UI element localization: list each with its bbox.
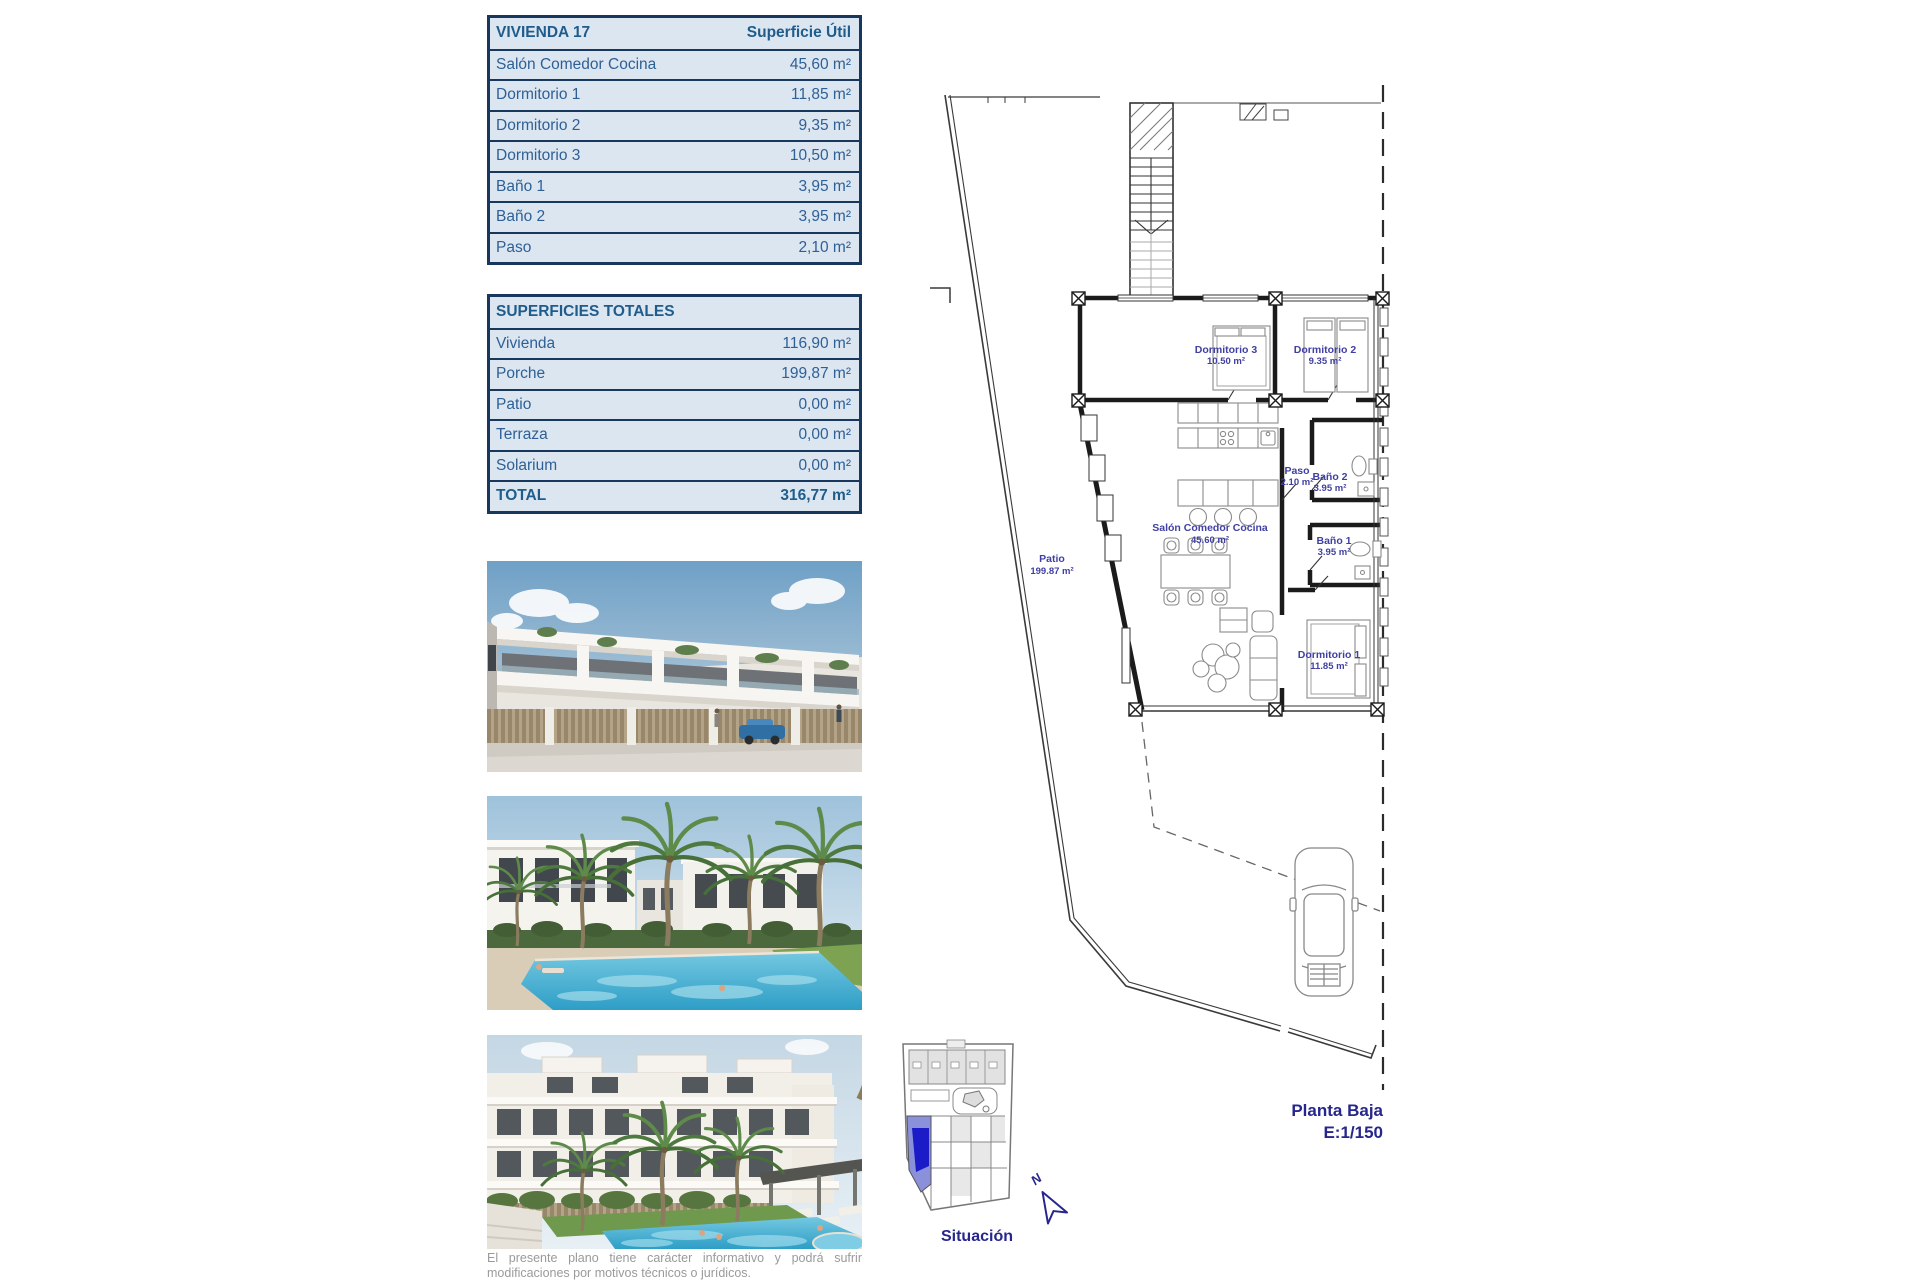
room-area-paso: 2.10 m²: [1281, 477, 1314, 488]
plan-caption-scale: E:1/150: [1323, 1123, 1383, 1140]
row-label: Baño 2: [496, 208, 545, 226]
row-label: Solarium: [496, 457, 557, 475]
render-photo-pool: [487, 796, 862, 1010]
roof-elements: [1240, 104, 1288, 120]
floor-plan: Dormitorio 3 10.50 m² Dormitorio 2 9.35 …: [930, 70, 1400, 1140]
row-label: Paso: [496, 239, 531, 257]
floor-plan-area: Dormitorio 3 10.50 m² Dormitorio 2 9.35 …: [930, 70, 1400, 1140]
totales-table: SUPERFICIES TOTALES Vivienda116,90 m² Po…: [487, 294, 862, 514]
render-photo-street: [487, 561, 862, 772]
total-value: 316,77 m²: [780, 487, 851, 505]
room-area-bano1: 3.95 m²: [1318, 547, 1351, 558]
render-photo-building-art: [487, 1035, 862, 1249]
table-row: Baño 13,95 m²: [490, 171, 859, 202]
table-row: Dormitorio 29,35 m²: [490, 110, 859, 141]
table-row: Dormitorio 111,85 m²: [490, 79, 859, 110]
row-value: 10,50 m²: [790, 147, 851, 165]
row-label: Salón Comedor Cocina: [496, 56, 656, 74]
row-value: 9,35 m²: [798, 117, 851, 135]
room-label-paso: Paso: [1284, 465, 1309, 477]
highlighted-parcel: [907, 1116, 931, 1192]
row-value: 3,95 m²: [798, 178, 851, 196]
row-value: 45,60 m²: [790, 56, 851, 74]
site-road: [911, 1090, 949, 1101]
room-label-bano1: Baño 1: [1316, 535, 1351, 547]
render-photo-street-art: [487, 561, 862, 772]
furniture: [1161, 318, 1381, 700]
north-arrow-icon: N: [1028, 1170, 1067, 1224]
table-row: Vivienda116,90 m²: [490, 328, 859, 359]
situacion-map: Situación N: [885, 1038, 1085, 1250]
table-row: Dormitorio 310,50 m²: [490, 140, 859, 171]
render-photo-building: [487, 1035, 862, 1249]
room-label-dormitorio3: Dormitorio 3: [1195, 344, 1258, 356]
row-label: Porche: [496, 365, 545, 383]
site-plaza: [953, 1088, 997, 1114]
situacion-map-area: Situación N: [885, 1038, 1085, 1250]
row-value: 199,87 m²: [781, 365, 851, 383]
room-label-salon: Salón Comedor Cocina: [1152, 522, 1268, 534]
table-row: Paso2,10 m²: [490, 232, 859, 263]
stairwell: [1130, 103, 1173, 297]
table-row: Salón Comedor Cocina45,60 m²: [490, 49, 859, 80]
row-label: Dormitorio 2: [496, 117, 580, 135]
room-area-dormitorio3: 10.50 m²: [1207, 356, 1245, 367]
table-row: Terraza0,00 m²: [490, 419, 859, 450]
plan-caption-title: Planta Baja: [1291, 1101, 1383, 1120]
table-title: SUPERFICIES TOTALES: [496, 303, 675, 321]
plan-sheet-page: VIVIENDA 17 Superficie Útil Salón Comedo…: [0, 0, 1920, 1280]
room-label-dormitorio2: Dormitorio 2: [1294, 344, 1357, 356]
table-header-row: SUPERFICIES TOTALES: [490, 297, 859, 328]
room-label-patio: Patio: [1039, 553, 1065, 565]
row-label: Baño 1: [496, 178, 545, 196]
row-label: Dormitorio 3: [496, 147, 580, 165]
situacion-label: Situación: [941, 1228, 1013, 1245]
room-area-dormitorio2: 9.35 m²: [1309, 356, 1342, 367]
row-label: Dormitorio 1: [496, 86, 580, 104]
north-letter: N: [1028, 1170, 1045, 1188]
row-value: 116,90 m²: [782, 335, 851, 353]
row-label: Vivienda: [496, 335, 555, 353]
row-value: 3,95 m²: [798, 208, 851, 226]
row-value: 11,85 m²: [791, 86, 851, 104]
table-row: Solarium0,00 m²: [490, 450, 859, 481]
row-value: 2,10 m²: [798, 239, 851, 257]
room-label-dormitorio1: Dormitorio 1: [1298, 649, 1361, 661]
table-row: Porche199,87 m²: [490, 358, 859, 389]
row-label: Terraza: [496, 426, 548, 444]
terrace-outline: [1173, 103, 1381, 297]
car-icon: [1290, 848, 1358, 996]
vivienda-table: VIVIENDA 17 Superficie Útil Salón Comedo…: [487, 15, 862, 265]
table-total-row: TOTAL316,77 m²: [490, 480, 859, 511]
table-row: Patio0,00 m²: [490, 389, 859, 420]
swimmer: [719, 985, 725, 991]
total-label: TOTAL: [496, 487, 546, 505]
room-area-dormitorio1: 11.85 m²: [1310, 661, 1348, 672]
row-value: 0,00 m²: [798, 457, 851, 475]
room-area-bano2: 3.95 m²: [1314, 483, 1347, 494]
row-label: Patio: [496, 396, 531, 414]
row-value: 0,00 m²: [798, 396, 851, 414]
room-area-salon: 45.60 m²: [1191, 535, 1229, 546]
room-area-patio: 199.87 m²: [1030, 566, 1073, 577]
table-title: VIVIENDA 17: [496, 24, 590, 42]
row-value: 0,00 m²: [798, 426, 851, 444]
render-photo-pool-art: [487, 796, 862, 1010]
disclaimer-text: El presente plano tiene carácter informa…: [487, 1251, 862, 1280]
windows: [1118, 295, 1368, 301]
table-row: Baño 23,95 m²: [490, 201, 859, 232]
room-label-bano2: Baño 2: [1312, 471, 1347, 483]
table-header-value: Superficie Útil: [747, 24, 851, 42]
table-header-row: VIVIENDA 17 Superficie Útil: [490, 18, 859, 49]
plan-caption: Planta Baja E:1/150: [1291, 1101, 1383, 1140]
